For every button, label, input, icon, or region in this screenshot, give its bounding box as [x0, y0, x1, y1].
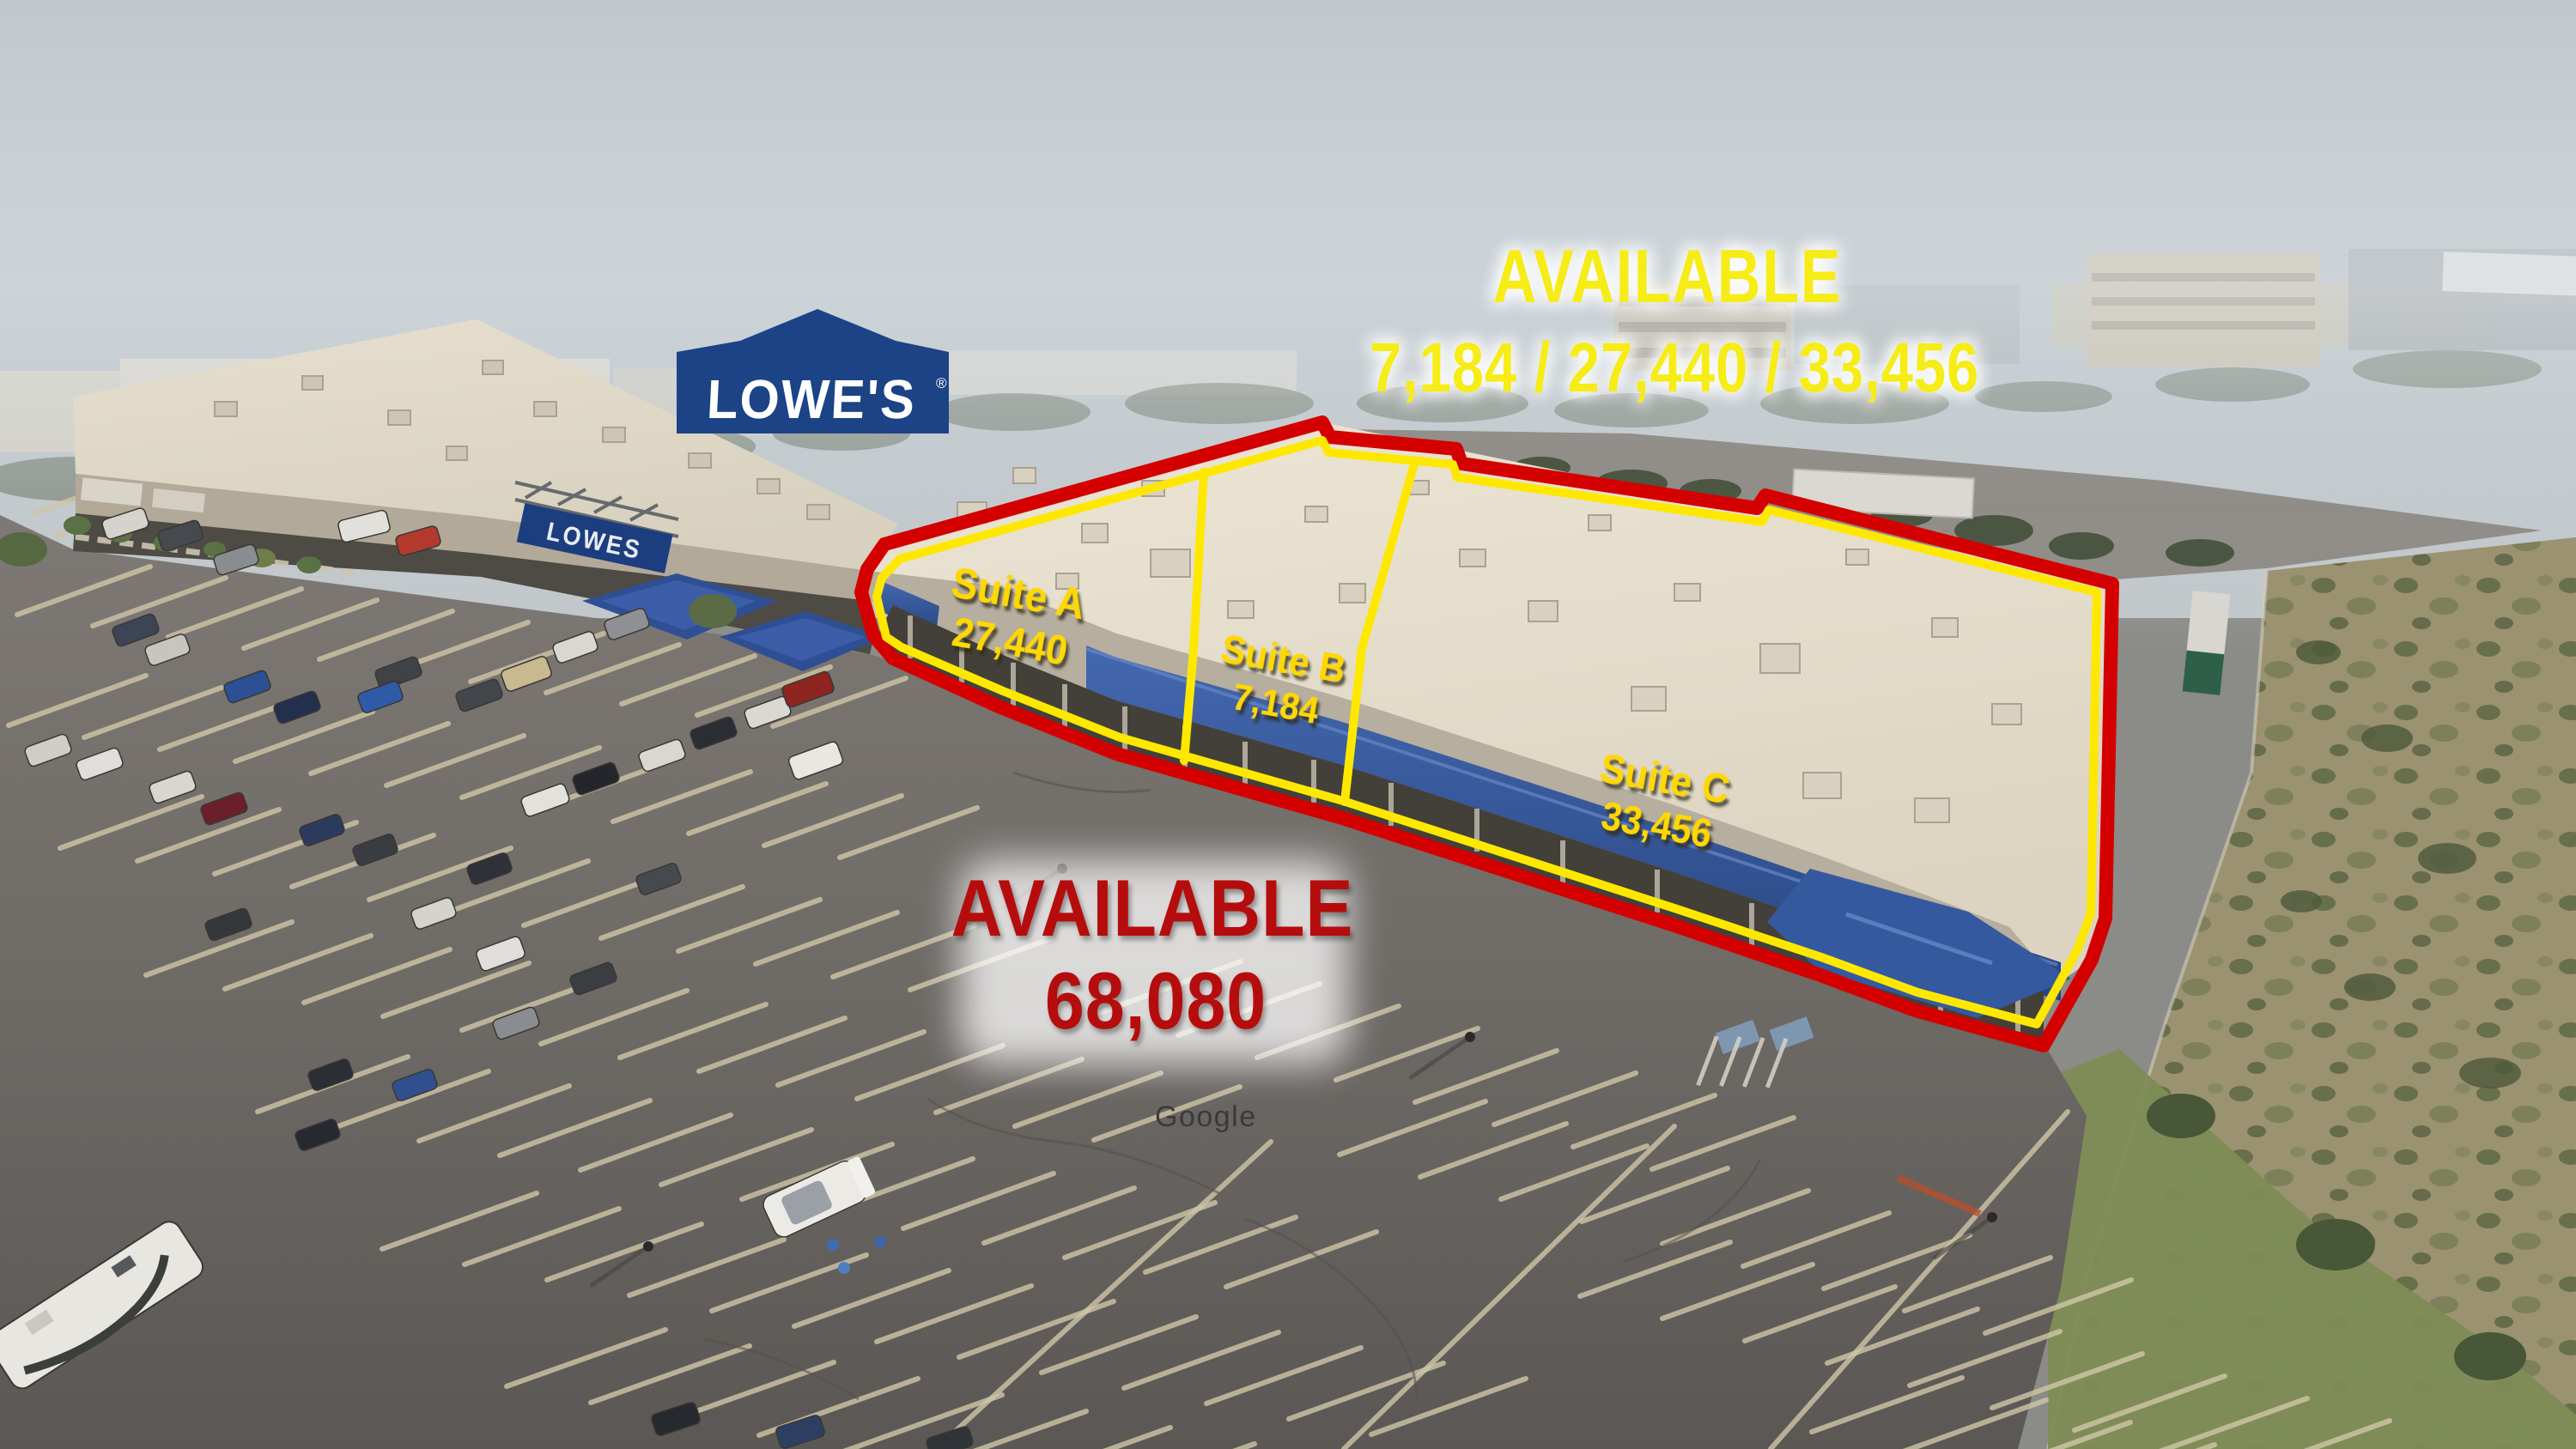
top-banner-title: AVAILABLE — [1493, 233, 1843, 318]
bottom-banner: AVAILABLE 68,080 — [951, 860, 1354, 1064]
registered-mark: ® — [936, 375, 947, 391]
person-dot — [838, 1262, 850, 1274]
bottom-banner-size: 68,080 — [1045, 955, 1267, 1046]
lot-tree — [689, 594, 737, 628]
google-watermark: Google — [1155, 1100, 1257, 1133]
person-dot — [827, 1239, 839, 1251]
top-banner-sizes: 7,184 / 27,440 / 33,456 — [1370, 328, 1979, 407]
person-dot — [874, 1236, 886, 1248]
aerial-photo: LOWES — [0, 0, 2576, 1449]
lowes-logo-text: LOWE'S — [706, 369, 918, 430]
bottom-banner-title: AVAILABLE — [951, 863, 1354, 953]
scene: LOWES — [0, 0, 2576, 1449]
